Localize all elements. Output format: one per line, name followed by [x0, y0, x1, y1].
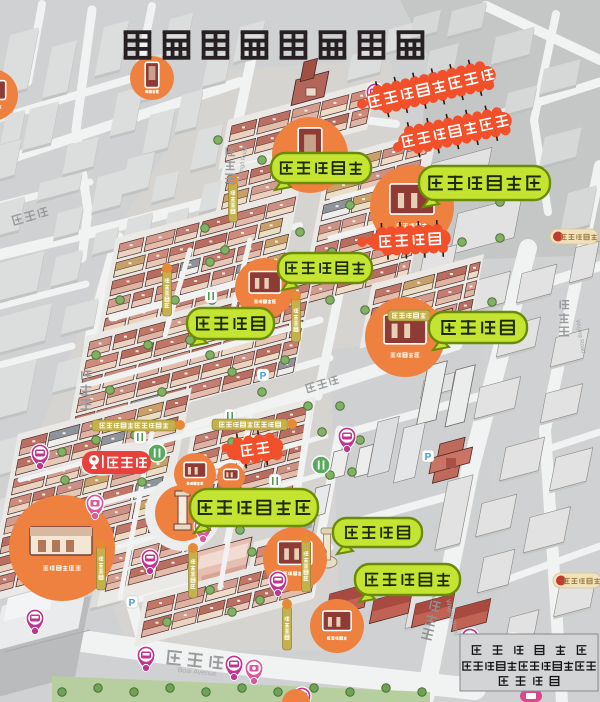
- svg-text:P: P: [260, 371, 267, 382]
- svg-text:P: P: [425, 452, 432, 463]
- svg-text:P: P: [129, 598, 136, 609]
